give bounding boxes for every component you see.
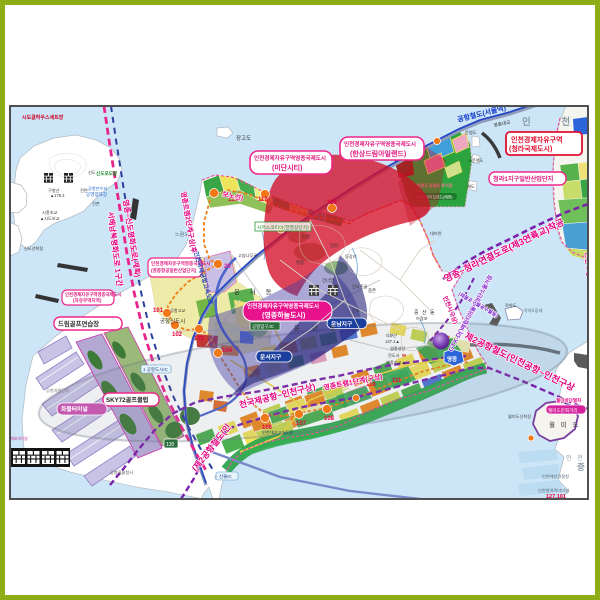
svg-text:석화산: 석화산	[385, 333, 398, 338]
svg-text:116: 116	[327, 200, 337, 206]
svg-text:신도: 신도	[88, 169, 96, 175]
svg-text:전면: 전면	[80, 187, 88, 193]
svg-text:인천경제자유구역: 인천경제자유구역	[511, 135, 563, 144]
svg-text:소운렴도: 소운렴도	[468, 157, 484, 163]
svg-text:작약도등대: 작약도등대	[524, 307, 543, 313]
svg-text:▲시도보교: ▲시도보교	[40, 216, 60, 221]
svg-text:(영종하늘도시): (영종하늘도시)	[262, 311, 305, 320]
svg-text:(미단시티): (미단시티)	[272, 163, 302, 172]
svg-text:전소: 전소	[352, 307, 360, 313]
svg-text:월미바다열차: 월미바다열차	[556, 397, 582, 404]
svg-text:매도: 매도	[467, 183, 475, 190]
svg-text:대브런: 대브런	[430, 230, 442, 237]
svg-text:147.1▲: 147.1▲	[385, 339, 400, 344]
svg-text:103: 103	[194, 336, 205, 342]
svg-text:공영양묘장: 공영양묘장	[86, 191, 108, 197]
svg-text:화물터미널: 화물터미널	[61, 405, 88, 413]
svg-text:장고도: 장고도	[236, 135, 251, 142]
svg-text:영종: 영종	[296, 259, 304, 265]
svg-text:신도선착장: 신도선착장	[24, 245, 43, 252]
svg-text:동강리: 동강리	[345, 253, 357, 260]
svg-text:101: 101	[153, 308, 164, 314]
svg-text:20: 20	[224, 264, 231, 270]
svg-text:신촌: 신촌	[92, 200, 100, 206]
svg-text:1 공항도시IC: 1 공항도시IC	[143, 366, 169, 372]
svg-text:(한상드림아일랜드): (한상드림아일랜드)	[350, 149, 406, 158]
svg-text:영종초교▲: 영종초교▲	[386, 359, 406, 365]
svg-text:중 산 동: 중 산 동	[414, 309, 436, 316]
svg-text:아잠포: 아잠포	[416, 315, 428, 322]
svg-text:102: 102	[172, 332, 183, 338]
svg-text:인 천: 인 천	[566, 454, 585, 462]
svg-text:월미도선착장: 월미도선착장	[508, 413, 531, 420]
svg-text:고얌나무골: 고얌나무골	[238, 252, 257, 259]
svg-text:104: 104	[222, 348, 233, 354]
svg-text:드림골프연습장: 드림골프연습장	[58, 319, 99, 328]
svg-text:인천대교고속도로: 인천대교고속도로	[262, 429, 293, 436]
svg-text:인천경제자유구역영종국제도시: 인천경제자유구역영종국제도시	[247, 302, 319, 310]
svg-text:(자유무역지역): (자유무역지역)	[73, 297, 102, 304]
svg-text:영종성당: 영종성당	[390, 345, 406, 351]
svg-text:130: 130	[166, 442, 175, 448]
svg-text:운 서 동: 운 서 동	[234, 287, 276, 296]
svg-text:당산: 당산	[330, 242, 338, 248]
svg-text:(청라국제도시): (청라국제도시)	[509, 144, 552, 153]
svg-text:인천경제자유구역영종국제도시: 인천경제자유구역영종국제도시	[65, 291, 122, 298]
svg-text:운서지구: 운서지구	[260, 353, 282, 361]
svg-text:108: 108	[324, 416, 335, 422]
svg-text:중촌: 중촌	[368, 287, 376, 293]
svg-text:인 천: 인 천	[522, 117, 584, 128]
svg-text:간나주골: 간나주골	[352, 283, 368, 290]
svg-text:▲178.4: ▲178.4	[50, 193, 65, 198]
svg-text:(영종항공일반산업단지): (영종항공일반산업단지)	[151, 267, 197, 274]
svg-text:잔도사: 잔도사	[388, 352, 400, 359]
svg-text:₩: ₩	[402, 353, 406, 358]
svg-text:영종: 영종	[447, 355, 457, 363]
svg-text:공항만우지: 공항만우지	[88, 185, 107, 192]
svg-text:운렴도: 운렴도	[465, 129, 477, 135]
svg-text:시흥초교: 시흥초교	[42, 209, 58, 215]
svg-text:SKY72골프클럽: SKY72골프클럽	[106, 396, 149, 404]
svg-text:111: 111	[392, 378, 402, 384]
svg-text:107: 107	[296, 421, 307, 427]
svg-text:시저스코리아(한영상단지): 시저스코리아(한영상단지)	[257, 224, 309, 231]
svg-text:인천경제자유구역영종국제도시: 인천경제자유구역영종국제도시	[254, 154, 326, 162]
svg-text:건너말: 건너말	[322, 277, 334, 284]
svg-text:중: 중	[577, 462, 585, 472]
svg-text:제2터미널: 제2터미널	[10, 435, 28, 442]
svg-text:월 미 도: 월 미 도	[549, 420, 581, 429]
svg-text:공항신도시: 공항신도시	[160, 317, 185, 325]
svg-text:인천해양경찰청: 인천해양경찰청	[542, 473, 569, 480]
svg-text:118: 118	[258, 197, 268, 203]
svg-text:논골: 논골	[302, 234, 310, 239]
svg-text:공항자원단지: 공항자원단지	[46, 387, 69, 394]
svg-text:공항고교: 공항고교	[170, 307, 186, 313]
svg-text:작약도: 작약도	[505, 302, 517, 309]
svg-text:인천항여객터미널: 인천항여객터미널	[538, 487, 569, 494]
svg-text:인천경제자유구역영종국제도시: 인천경제자유구역영종국제도시	[344, 140, 416, 148]
svg-text:시도클하우스세트장: 시도클하우스세트장	[22, 114, 64, 121]
svg-text:월미도문화거리: 월미도문화거리	[548, 407, 578, 414]
svg-text:청라1지구일반산업단지: 청라1지구일반산업단지	[493, 175, 554, 183]
svg-text:신불IC: 신불IC	[219, 473, 233, 480]
svg-text:공항화물청사: 공항화물청사	[110, 469, 133, 476]
svg-text:공항입구JC: 공항입구JC	[252, 323, 275, 330]
svg-text:신도포도밭: 신도포도밭	[96, 170, 118, 177]
